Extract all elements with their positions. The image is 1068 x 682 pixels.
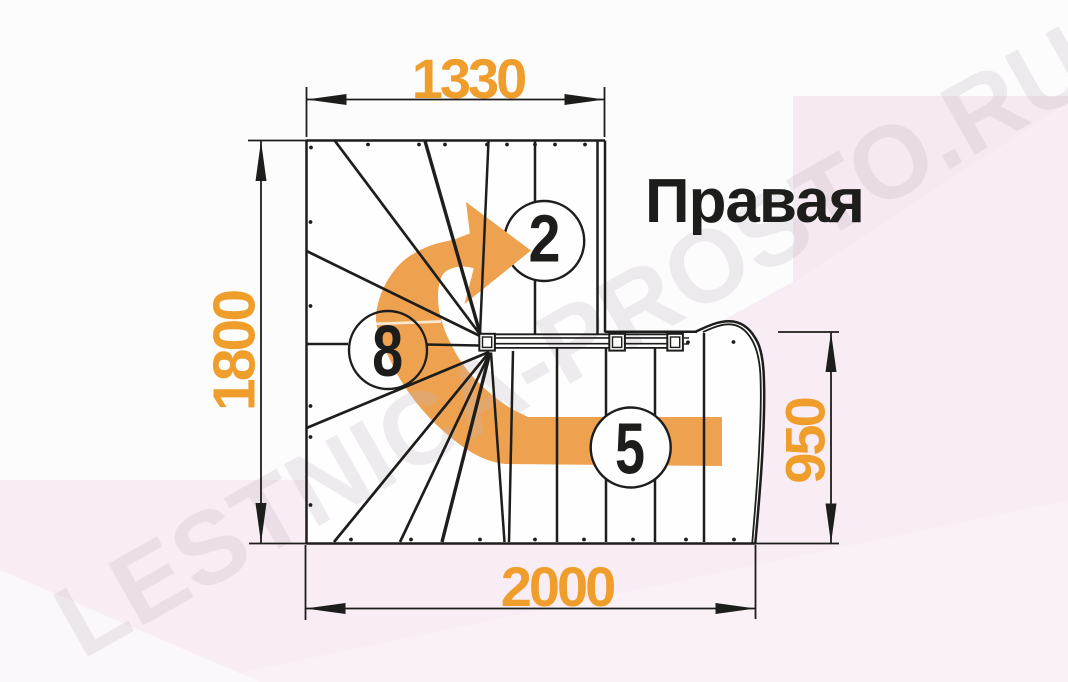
svg-text:1330: 1330 — [412, 47, 525, 110]
svg-text:8: 8 — [372, 312, 403, 392]
svg-text:5: 5 — [615, 410, 645, 490]
svg-text:2000: 2000 — [501, 555, 614, 618]
svg-text:1800: 1800 — [202, 291, 268, 411]
svg-text:950: 950 — [774, 398, 837, 483]
svg-text:Правая: Правая — [645, 167, 864, 236]
svg-text:2: 2 — [529, 202, 561, 277]
